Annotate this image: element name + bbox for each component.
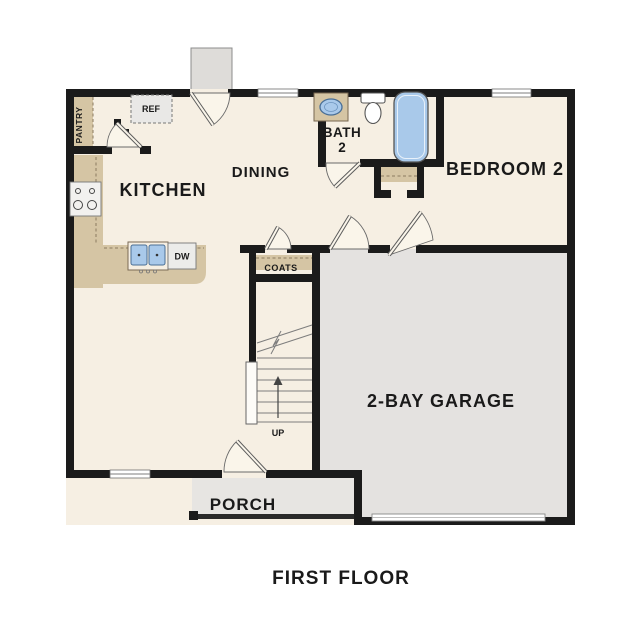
garage-label: 2-BAY GARAGE (367, 391, 515, 411)
bath2-label-line2: 2 (338, 140, 346, 155)
porch-label: PORCH (210, 495, 276, 514)
porch-edge (191, 514, 354, 519)
kitchen-sink-icon (128, 242, 168, 273)
bathtub-icon (394, 92, 428, 162)
stoop (191, 48, 232, 91)
bathroom-vanity-icon (314, 93, 348, 121)
kitchen-label: KITCHEN (120, 180, 207, 200)
dining-label: DINING (232, 164, 291, 181)
window-icon-living (110, 470, 150, 478)
stove-icon (70, 182, 101, 216)
window-icon-bedroom2 (492, 89, 531, 97)
stair-newel (246, 362, 257, 424)
porch-post (189, 511, 198, 520)
pantry-label: PANTRY (74, 107, 84, 144)
floor-plan-page: KITCHEN DINING BATH 2 BEDROOM 2 2-BAY GA… (0, 0, 640, 639)
stairs-up-label: UP (272, 428, 285, 438)
bath2-label-line1: BATH (323, 125, 362, 140)
garage-door-icon (372, 514, 545, 521)
floor-plan-svg: KITCHEN DINING BATH 2 BEDROOM 2 2-BAY GA… (0, 0, 640, 639)
refrigerator-label: REF (142, 104, 161, 114)
coats-label: COATS (264, 263, 297, 273)
bedroom2-label: BEDROOM 2 (446, 159, 564, 179)
page-title: FIRST FLOOR (272, 568, 410, 589)
window-icon-dining (258, 89, 298, 97)
linen-closet-shelf (381, 167, 417, 182)
dishwasher-label: DW (175, 252, 190, 262)
